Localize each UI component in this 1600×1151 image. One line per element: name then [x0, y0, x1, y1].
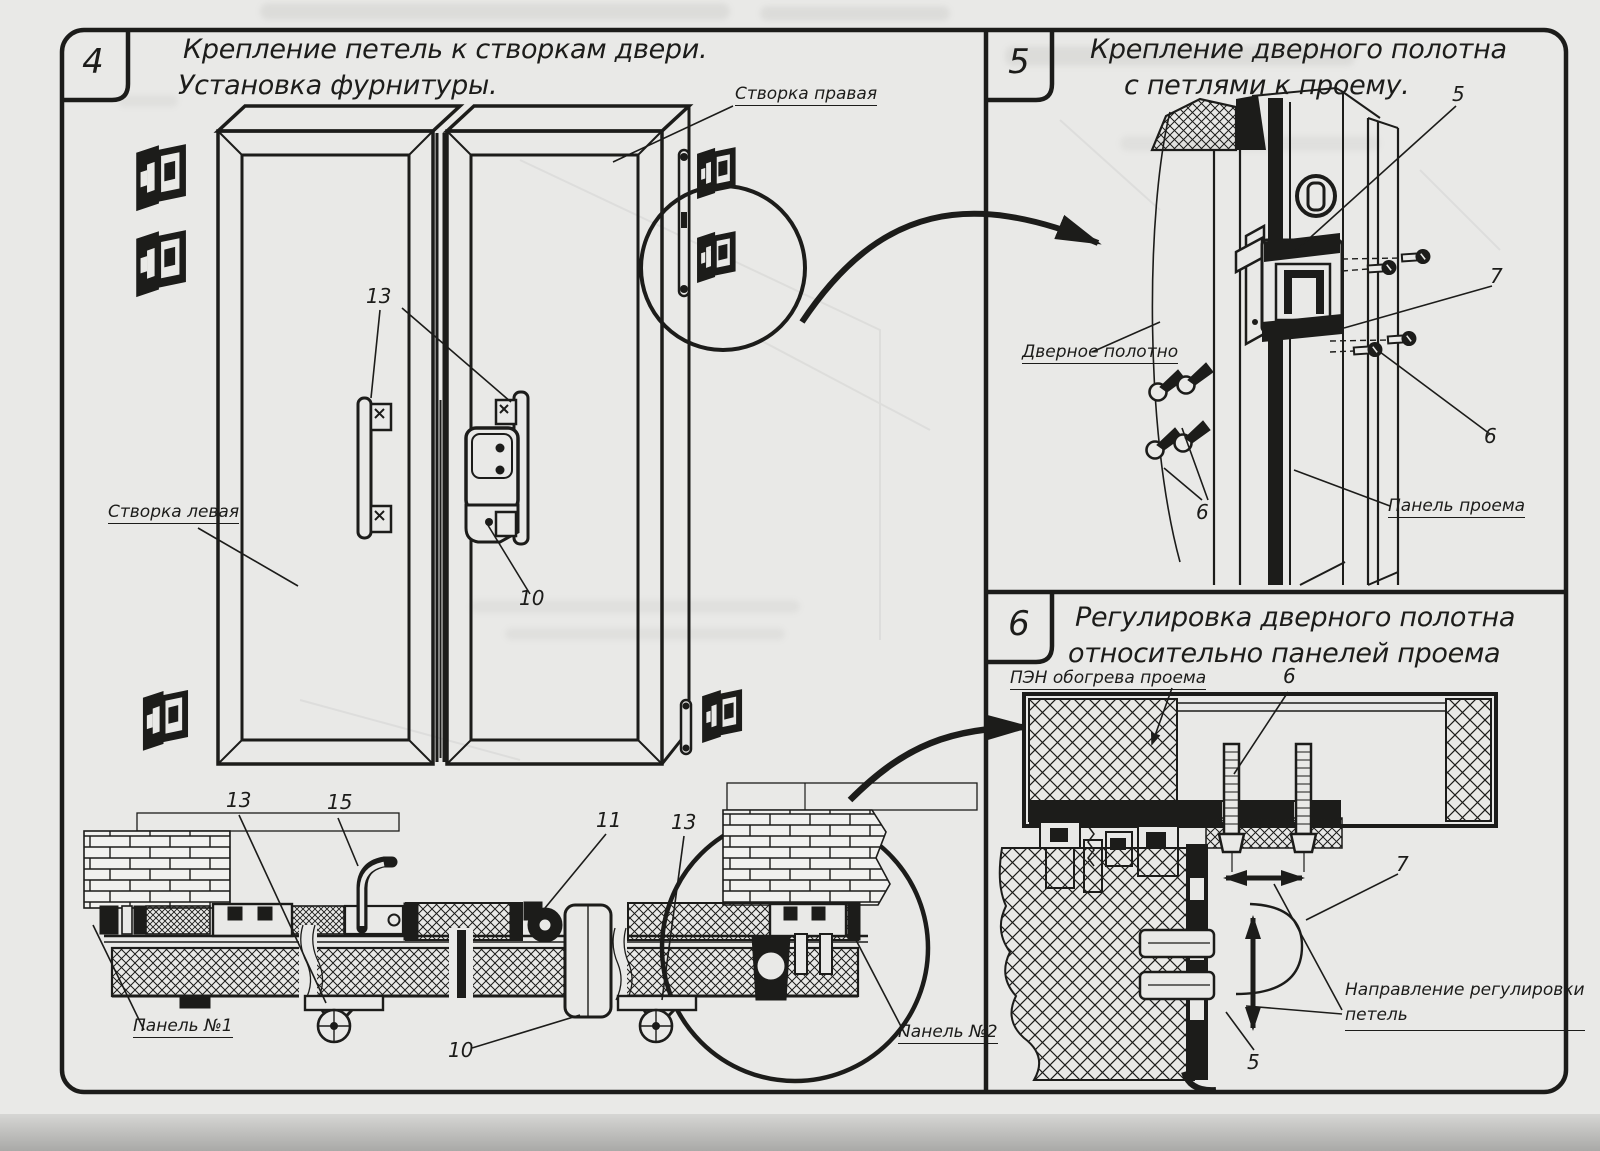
adjustment-direction-line1: Направление регулировки — [1345, 978, 1585, 1003]
left-door-handle — [358, 398, 391, 538]
label-right-leaf: Створка правая — [735, 84, 877, 106]
callout-6-right-p5: 6 — [1484, 424, 1497, 448]
door-leaf-left-drawing — [218, 106, 460, 764]
page-edge-shadow — [0, 1114, 1600, 1151]
label-panel-2: Панель №2 — [898, 1022, 998, 1044]
door-leaves-drawing — [218, 106, 689, 764]
panel-5-number: 5 — [996, 42, 1042, 82]
detail-boundary — [1152, 112, 1180, 562]
label-left-leaf: Створка левая — [108, 502, 239, 524]
label-adjustment-direction: Направление регулировки петель — [1345, 978, 1585, 1031]
callout-6-left-p5: 6 — [1196, 500, 1209, 524]
callout-7-p5: 7 — [1490, 264, 1503, 288]
door-gap — [437, 133, 444, 762]
panel-4-title-line1: Крепление петель к створкам двери. — [183, 34, 707, 65]
drawing-sheet: 4 Крепление петель к створкам двери. Уст… — [0, 0, 1600, 1151]
callout-5-p6: 5 — [1247, 1050, 1260, 1074]
callout-15: 15 — [327, 790, 352, 814]
hinge-icon — [697, 232, 735, 283]
hinge-assembly-3d — [1236, 226, 1342, 344]
caster-left — [318, 1010, 352, 1042]
callout-10-mid: 10 — [519, 586, 544, 610]
callout-13-left: 13 — [226, 788, 251, 812]
hinge-icon — [136, 230, 186, 297]
insulation-band — [112, 948, 858, 996]
screw-icon — [1175, 421, 1211, 452]
panel-6-number: 6 — [996, 604, 1042, 644]
adjustment-direction-line2: петель — [1345, 1003, 1585, 1028]
wall-section — [1000, 848, 1194, 1080]
callout-10-bottom: 10 — [448, 1038, 473, 1062]
hinge-icon — [703, 690, 742, 743]
hinge-icons — [136, 144, 188, 751]
screw-icon — [1402, 249, 1431, 265]
hinge-icon — [697, 148, 735, 199]
panel-6-title-line1: Регулировка дверного полотна — [1075, 602, 1515, 633]
callout-11: 11 — [596, 808, 621, 832]
screw-icon — [1368, 260, 1397, 276]
door-section-hatch — [1152, 99, 1236, 150]
callout-6-p6: 6 — [1283, 664, 1296, 688]
screw-icon — [1178, 363, 1214, 394]
callout-13-right: 13 — [671, 810, 696, 834]
panel-4-title-line2: Установка фурнитуры. — [178, 70, 497, 101]
callout-13-top: 13 — [366, 284, 391, 308]
caster-right — [640, 1010, 674, 1042]
label-panel-1: Панель №1 — [133, 1016, 233, 1038]
label-pen-heater: ПЭН обогрева проема — [1010, 668, 1206, 690]
detail-arrow-to-panel6 — [850, 727, 1028, 800]
cross-section-drawing — [84, 783, 977, 1042]
detail-arrow-to-panel5 — [802, 214, 1098, 322]
panel-5-title-line2: с петлями к проему. — [1124, 70, 1409, 101]
hinge-icon — [143, 690, 188, 751]
panel-5-title-line1: Крепление дверного полотна — [1090, 34, 1507, 65]
right-door-latch — [466, 392, 528, 544]
label-opening-panel: Панель проема — [1388, 496, 1525, 518]
callout-7-p6: 7 — [1396, 852, 1409, 876]
callout-5-p5: 5 — [1452, 82, 1465, 106]
adjustment-arrows — [1226, 852, 1304, 1028]
panel-4-number: 4 — [70, 42, 116, 82]
screw-icon — [1388, 331, 1417, 347]
brick-wall-right — [723, 810, 890, 905]
label-door-leaf: Дверное полотно — [1022, 342, 1178, 364]
hinge-icon — [136, 144, 186, 211]
scanned-assembly-drawing: { "colors": { "ink": "#1c1c1a", "paper":… — [0, 0, 1600, 1151]
brick-wall-left — [84, 831, 230, 908]
